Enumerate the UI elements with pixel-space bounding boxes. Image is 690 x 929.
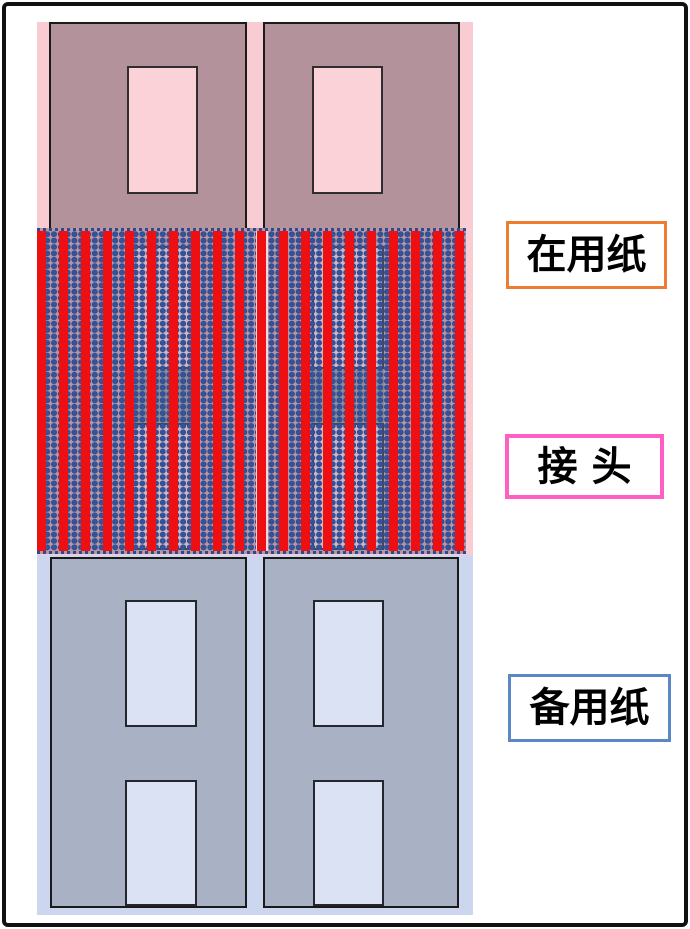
spare-paper-window <box>313 600 384 727</box>
in-use-paper-strip-2 <box>263 22 460 230</box>
spare-paper-strip-1 <box>50 557 247 908</box>
label-splice-joint: 接 头 <box>505 434 664 499</box>
glue-stripes-pattern <box>37 231 466 551</box>
paper-splice-figure: 在用纸 接 头 备用纸 <box>0 0 690 929</box>
in-use-paper-window <box>127 66 198 194</box>
label-in-use-paper: 在用纸 <box>506 221 667 289</box>
label-spare-paper: 备用纸 <box>508 674 671 742</box>
splice-joint-band <box>37 228 466 554</box>
spare-paper-strip-2 <box>263 557 459 908</box>
spare-paper-window <box>313 780 384 906</box>
spare-paper-window <box>125 780 197 906</box>
spare-paper-window <box>125 600 197 727</box>
in-use-paper-window <box>312 66 383 194</box>
in-use-paper-strip-1 <box>49 22 247 230</box>
